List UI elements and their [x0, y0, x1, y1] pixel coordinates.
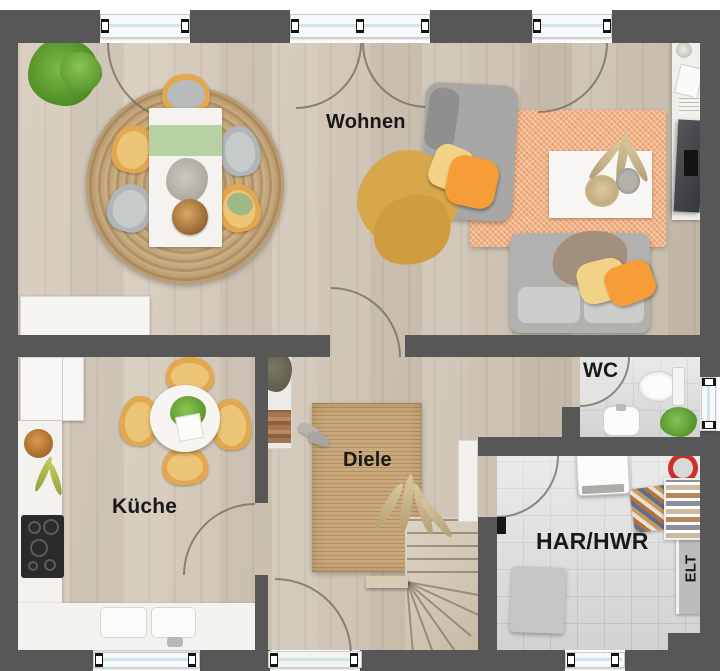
sofa-cushion	[518, 287, 580, 323]
wall-kitchen-hall	[255, 357, 268, 503]
burner	[28, 561, 38, 571]
tv-mount	[684, 150, 698, 176]
wall-wc-south	[478, 437, 720, 456]
wall-living-south	[405, 335, 720, 357]
room-label-wc: WC	[583, 359, 618, 383]
room-label-diele: Diele	[343, 449, 392, 472]
window-marker	[421, 19, 429, 33]
wall-living-south	[0, 335, 330, 357]
chair-seat	[167, 452, 204, 481]
kitchen-chair	[161, 446, 208, 486]
wall-bottom	[0, 650, 93, 671]
wc-plant	[660, 407, 697, 437]
window-marker	[611, 653, 619, 667]
wall-kitchen-hall	[255, 575, 268, 650]
hall-wardrobe	[458, 440, 478, 522]
chair-seat	[214, 404, 247, 447]
window-marker	[356, 19, 364, 33]
window-marker	[567, 653, 575, 667]
burner	[30, 539, 48, 557]
room-label-elt: ELT	[683, 540, 700, 598]
utility-unit	[510, 566, 566, 634]
stair-treads	[405, 517, 478, 650]
storage-shelf	[664, 478, 704, 540]
burner	[28, 521, 41, 534]
wall-top	[430, 10, 532, 43]
wall-bottom	[360, 650, 565, 671]
floor-plan: Wohnen Küche Diele WC HAR/HWR ELT	[0, 0, 720, 671]
room-label-wohnen: Wohnen	[326, 111, 406, 134]
wall-bottom	[200, 650, 270, 671]
decor-card	[175, 413, 204, 442]
chair-seat	[109, 186, 151, 231]
sideboard	[20, 296, 150, 336]
window-marker	[702, 378, 716, 386]
window	[100, 14, 190, 38]
door-marker	[270, 653, 278, 667]
faucet	[167, 637, 183, 647]
wall-har-west	[478, 517, 497, 650]
wall-wc-west	[562, 407, 580, 437]
shelf-towels	[266, 410, 291, 443]
cabinet-divider	[62, 358, 63, 420]
wall-right	[700, 10, 720, 377]
burner	[44, 559, 56, 571]
wall-corner-chunk	[668, 633, 720, 671]
chair-seat	[114, 128, 152, 171]
window-marker	[188, 653, 196, 667]
sink-basin	[100, 607, 147, 638]
decor-books	[679, 97, 699, 114]
window-marker	[181, 19, 189, 33]
window	[532, 14, 612, 38]
window-marker	[95, 653, 103, 667]
toilet-tank	[672, 367, 685, 406]
chair-seat	[167, 79, 206, 110]
window-marker	[291, 19, 299, 33]
vase	[616, 168, 640, 194]
table-decor-flowers	[166, 158, 208, 202]
sink-tap	[616, 404, 626, 411]
fruit-bowl	[24, 429, 53, 458]
kitchen-window	[93, 652, 200, 668]
room-label-kueche: Küche	[112, 495, 177, 519]
wall-top	[190, 10, 290, 43]
window-marker	[702, 421, 716, 429]
decor-tray	[585, 175, 619, 207]
decor-plate	[172, 199, 208, 235]
sink-basin	[151, 607, 196, 638]
door-marker	[350, 653, 358, 667]
window-marker	[533, 19, 541, 33]
burner	[43, 519, 59, 535]
window-marker	[101, 19, 109, 33]
stair-landing-step	[366, 576, 408, 588]
decor-candle	[676, 42, 692, 58]
entrance-door-sill	[268, 651, 362, 668]
table-runner	[149, 125, 222, 156]
window-marker	[603, 19, 611, 33]
room-label-har-hwr: HAR/HWR	[536, 528, 649, 555]
chair-seat	[223, 130, 258, 174]
fridge-cabinet	[20, 357, 84, 421]
